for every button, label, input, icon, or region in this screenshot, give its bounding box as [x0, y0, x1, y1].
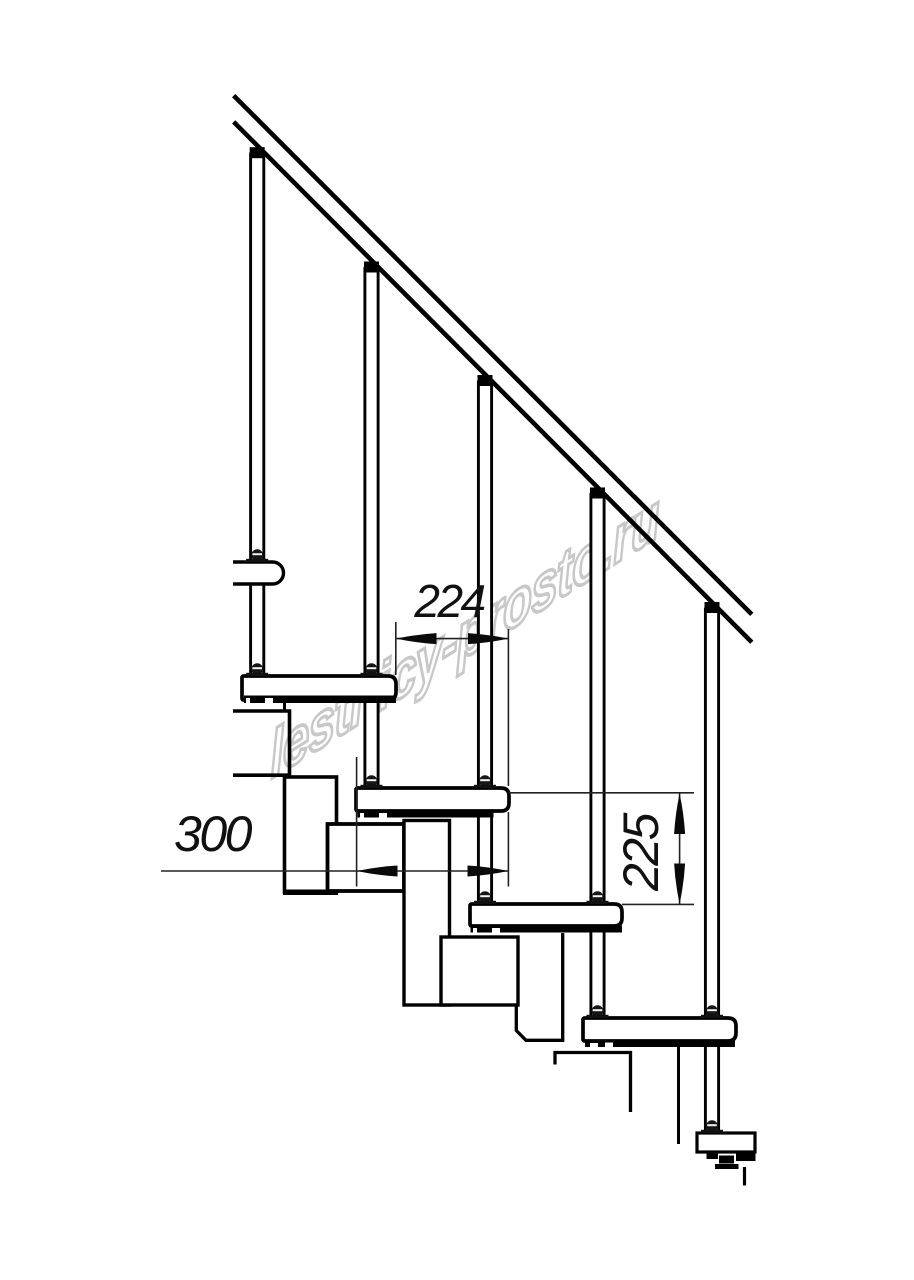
svg-text:300: 300	[174, 806, 253, 862]
svg-text:225: 225	[613, 812, 669, 892]
svg-text:224: 224	[413, 575, 484, 627]
